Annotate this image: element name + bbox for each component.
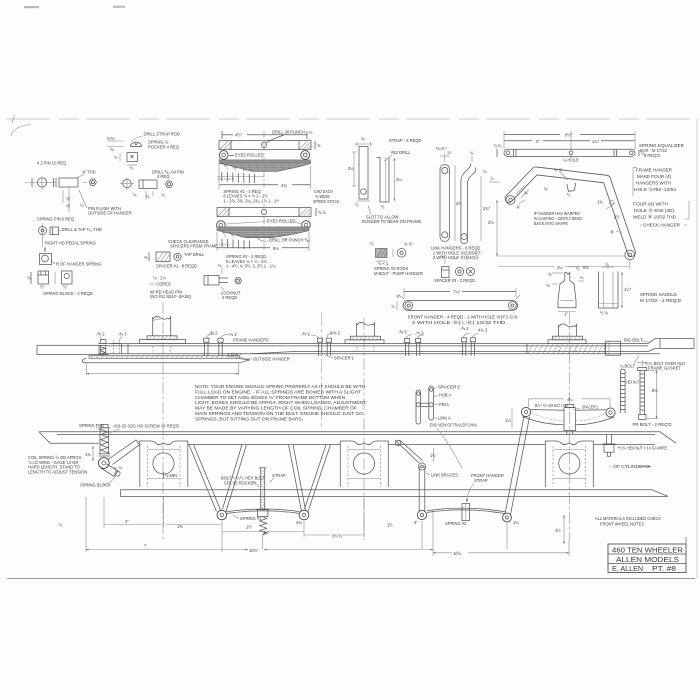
svg-text:⅔”: ⅔” xyxy=(66,204,71,209)
svg-text:ROCKER 4 REQ: ROCKER 4 REQ xyxy=(148,145,179,150)
svg-text:∕⅛ 3: ∕⅛ 3 xyxy=(228,332,237,337)
svg-text:M BOLT - PUMP HANGER: M BOLT - PUMP HANGER xyxy=(374,271,423,276)
svg-text:MAKE FOUR (4): MAKE FOUR (4) xyxy=(637,174,672,179)
svg-text:⅞”: ⅞” xyxy=(66,197,71,202)
svg-text:½: ½ xyxy=(59,523,63,528)
svg-text:⅞: ⅞ xyxy=(490,176,494,181)
svg-text:HUB A: HUB A xyxy=(439,393,452,398)
svg-text:SPACER #3 - 2 REQD: SPACER #3 - 2 REQD xyxy=(434,278,475,283)
svg-text:∕⅛ 3: ∕⅛ 3 xyxy=(415,331,424,336)
svg-text:TAP DRILL: TAP DRILL xyxy=(184,252,205,257)
svg-text:⅛ MIN: ⅛ MIN xyxy=(165,473,177,478)
svg-text:½: ½ xyxy=(370,242,374,247)
svg-text:□ - CORED: □ - CORED xyxy=(150,282,171,287)
svg-text:ROCKER TO BEAR ON FRAME: ROCKER TO BEAR ON FRAME xyxy=(362,219,421,224)
svg-text:SPACER’2: SPACER’2 xyxy=(438,385,461,390)
svg-text:⅝: ⅝ xyxy=(544,187,548,192)
svg-text:∕⅝″2: ∕⅝″2 xyxy=(301,332,311,337)
svg-text:⅛: ⅛ xyxy=(546,283,550,288)
svg-text:⅔ Ⓐ: ⅔ Ⓐ xyxy=(404,241,413,247)
svg-text:2 REQD: 2 REQD xyxy=(222,295,237,300)
svg-text:4¼: 4¼ xyxy=(567,397,573,402)
svg-text:ALLEN MODELS: ALLEN MODELS xyxy=(616,555,679,564)
svg-text:HEX NUT: HEX NUT xyxy=(627,380,640,385)
svg-text:(NO #11 SELF- BASE): (NO #11 SELF- BASE) xyxy=(150,294,192,299)
svg-text:2 WITH HOLE Ⓑ(​5/40)Ⓖ: 2 WITH HOLE Ⓑ(​5/40)Ⓖ xyxy=(433,254,479,260)
svg-text:DRILL STRAP ROD: DRILL STRAP ROD xyxy=(144,132,180,137)
svg-text:PIN’1: PIN’1 xyxy=(439,402,450,407)
svg-text:HOLE Ⓑ 5/40 (4D): HOLE Ⓑ 5/40 (4D) xyxy=(634,207,675,213)
svg-text:# 2 PIN 10 REQ: # 2 PIN 10 REQ xyxy=(37,161,66,166)
svg-text:¼: ¼ xyxy=(80,203,84,208)
svg-text:NOTE: YOUR ENGINE SHOULD SPRIN: NOTE: YOUR ENGINE SHOULD SPRING PROPERLY… xyxy=(195,384,365,389)
svg-text:SPACER #1 - 8 REQD: SPACER #1 - 8 REQD xyxy=(156,264,197,269)
svg-text:1½: 1½ xyxy=(246,525,252,530)
svg-text:1½: 1½ xyxy=(505,418,511,423)
svg-text:⅜: ⅜ xyxy=(144,255,148,260)
svg-text:FRONT HANGER - 4 REQD - 2 WITH: FRONT HANGER - 4 REQD - 2 WITH HOLE Ⓐ(Ⓕ)… xyxy=(408,314,518,320)
svg-text:FOUR (4) WITH: FOUR (4) WITH xyxy=(633,202,668,207)
svg-text:OUTSIDE OF HANGER: OUTSIDE OF HANGER xyxy=(88,211,132,216)
svg-text:SPACERS FROM FRAME: SPACERS FROM FRAME xyxy=(170,244,218,249)
svg-text:2¾″: 2¾″ xyxy=(483,206,491,211)
svg-text:3″: 3″ xyxy=(125,519,129,524)
svg-text:#53 DRILL: #53 DRILL xyxy=(391,150,411,155)
svg-text:SPRING STOCK: SPRING STOCK xyxy=(313,199,339,204)
svg-text:10⅞: 10⅞ xyxy=(453,551,462,556)
svg-text:4 REQ: 4 REQ xyxy=(157,174,169,179)
svg-text:RIGHT HD PEDAL SPRING: RIGHT HD PEDAL SPRING xyxy=(45,241,96,246)
svg-text:½″: ½″ xyxy=(441,254,446,259)
svg-text:LIGHT, BOXES SHOULD BE APROX.: LIGHT, BOXES SHOULD BE APROX. RIGHT WHEN… xyxy=(195,400,367,405)
svg-text:⅛: ⅛ xyxy=(133,193,137,198)
svg-text:FRAME HANGER: FRAME HANGER xyxy=(636,168,672,173)
svg-text:MAY BE MADE BY VARYING LENGTH: MAY BE MADE BY VARYING LENGTH OF COIL SP… xyxy=(195,406,358,411)
svg-text:2½: 2½ xyxy=(456,201,462,206)
svg-text:⅒⅖″: ⅒⅖″ xyxy=(436,146,448,151)
svg-text:BUY + ⅕⅖ HEX BOLT 1 NUT: BUY + ⅕⅖ HEX BOLT 1 NUT xyxy=(535,403,568,408)
svg-text:1⅝: 1⅝ xyxy=(597,200,603,205)
svg-text:DRILL & TAP ⅕₀ THD: DRILL & TAP ⅕₀ THD xyxy=(62,227,102,232)
svg-text:8½″: 8½″ xyxy=(565,133,573,138)
svg-text:EYES ROLLED: EYES ROLLED xyxy=(267,219,295,224)
svg-text:↖ ⅛: ↖ ⅛ xyxy=(114,466,123,471)
svg-text:2⅛: 2⅛ xyxy=(488,220,494,225)
svg-text:¼ BOLT: ¼ BOLT xyxy=(620,364,635,369)
svg-text:PR BOLT - 2 REQ'D: PR BOLT - 2 REQ'D xyxy=(633,422,672,427)
svg-text:FULL LOAD ON ENGINE. - IF ALL: FULL LOAD ON ENGINE. - IF ALL SPRINGS AR… xyxy=(195,389,362,394)
svg-text:BACK INTO SHAPE: BACK INTO SHAPE xyxy=(534,221,568,226)
svg-text:⅕⅖: ⅕⅖ xyxy=(494,144,502,149)
svg-text:E. ALLEN: E. ALLEN xyxy=(612,564,643,573)
svg-text:4½: 4½ xyxy=(555,528,561,533)
svg-text:FRAME GASKET: FRAME GASKET xyxy=(648,365,682,370)
svg-text:½”: ½” xyxy=(63,285,68,290)
svg-text:1½″: 1½″ xyxy=(624,287,632,292)
svg-text:WELD Ⓑ 10/32 THD: WELD Ⓑ 10/32 THD xyxy=(633,214,676,220)
svg-text:2¼: 2¼ xyxy=(348,166,354,171)
svg-text:⅞: ⅞ xyxy=(27,276,31,281)
svg-text:BIG BOLT: BIG BOLT xyxy=(624,338,643,343)
svg-text:½: ½ xyxy=(355,203,359,208)
svg-text:DRILL OR PUNCH ⅒: DRILL OR PUNCH ⅒ xyxy=(269,238,311,243)
svg-text:⅞″: ⅞″ xyxy=(447,151,452,156)
svg-text:4½: 4½ xyxy=(263,530,269,535)
svg-text:7⅛″: 7⅛″ xyxy=(453,290,461,295)
svg-text:2¼: 2¼ xyxy=(396,177,402,182)
svg-text:∕⅝ 2: ∕⅝ 2 xyxy=(96,332,105,337)
svg-text:⅝: ⅝ xyxy=(548,272,552,277)
svg-text:¾: ¾ xyxy=(470,151,474,156)
svg-text:½: ½ xyxy=(381,205,385,210)
svg-text:½”: ½” xyxy=(40,285,45,290)
svg-text:Ⓐ: Ⓐ xyxy=(396,293,400,299)
svg-text:4¼: 4¼ xyxy=(557,265,563,270)
svg-text:OUTSIDE HANGER: OUTSIDE HANGER xyxy=(253,357,290,362)
svg-text:¼ ¾ ½ ¾ ¼ ½: ¼ ¾ ½ ¾ ¼ ½ xyxy=(218,177,235,181)
svg-text:8 REQ'D: 8 REQ'D xyxy=(644,153,660,158)
svg-text:∕⅝ 2: ∕⅝ 2 xyxy=(209,331,218,336)
svg-text:LINK BRACES: LINK BRACES xyxy=(431,473,458,478)
svg-text:FRONT WHEEL NOTES: FRONT WHEEL NOTES xyxy=(600,521,644,526)
svg-text:END VIEW OF TRAILER CHNA: END VIEW OF TRAILER CHNA xyxy=(430,423,477,428)
svg-text:⅛: ⅛ xyxy=(483,169,487,174)
svg-text:460 TEN WHEELER: 460 TEN WHEELER xyxy=(612,546,683,555)
svg-text:SPACER’2: SPACER’2 xyxy=(582,405,599,410)
svg-text:∕⅝ 2: ∕⅝ 2 xyxy=(460,326,469,331)
svg-text:½: ½ xyxy=(146,195,150,200)
svg-text:1¾″: 1¾″ xyxy=(592,139,600,144)
svg-text:4​¾ 3: 4​¾ 3 xyxy=(478,328,488,333)
svg-text:+⅕⅖ HEX NUT × 14 GA WIRE: +⅕⅖ HEX NUT × 14 GA WIRE xyxy=(617,446,667,451)
svg-text:HANGERS WITH: HANGERS WITH xyxy=(636,181,671,186)
svg-text:½: ½ xyxy=(567,193,571,198)
svg-text:SPRING BLOCK - 2 REQD: SPRING BLOCK - 2 REQD xyxy=(43,291,93,296)
svg-text:⅝: ⅝ xyxy=(317,143,321,148)
svg-text:1 - 4½, 4, 3½, 3, 2½ 1 - 1¾: 1 - 4½, 4, 3½, 3, 2½ 1 - 1¾ xyxy=(226,264,276,269)
svg-text:3″: 3″ xyxy=(414,520,418,525)
svg-text:SPACER’1: SPACER’1 xyxy=(334,356,354,361)
svg-text:½: ½ xyxy=(576,267,580,272)
svg-text:SPRINGS, BUT SITTING OUT ON FR: SPRINGS, BUT SITTING OUT ON FRAME BARS. xyxy=(195,416,303,421)
svg-text:R OF HANGER SPRING: R OF HANGER SPRING xyxy=(56,262,101,267)
svg-text:4¾: 4¾ xyxy=(281,183,287,188)
svg-text:SPRING SADDLE: SPRING SADDLE xyxy=(640,292,677,297)
svg-text:4​¾: 4​¾ xyxy=(296,520,302,525)
svg-text:½: ½ xyxy=(130,166,134,171)
svg-text:4½″: 4½″ xyxy=(235,133,243,138)
svg-text:½: ½ xyxy=(114,155,118,160)
svg-text:⅝: ⅝ xyxy=(361,137,365,142)
svg-text:½ Ⓐ: ½ Ⓐ xyxy=(554,167,563,173)
svg-text:⅝ ⅞: ⅝ ⅞ xyxy=(318,210,327,215)
svg-text:HOLE Ⓐ#50 -​13/64: HOLE Ⓐ#50 -​13/64 xyxy=(634,186,677,192)
svg-text:PT. #8: PT. #8 xyxy=(652,564,676,573)
svg-text:½ ⅔: ½ ⅔ xyxy=(600,311,609,316)
svg-text:3″: 3″ xyxy=(536,139,540,144)
svg-text:SPRING PIN 6 REQ: SPRING PIN 6 REQ xyxy=(37,217,74,222)
svg-text:FRAME HANGERS: FRAME HANGERS xyxy=(233,338,269,343)
svg-text:¾: ¾ xyxy=(605,262,609,267)
svg-text:SPRING PAD: SPRING PAD xyxy=(79,423,104,428)
svg-text:1½: 1½ xyxy=(387,523,393,528)
svg-text:8½: 8½ xyxy=(652,388,658,393)
svg-text:1⅜: 1⅜ xyxy=(177,524,183,529)
svg-text:EYES ROLLED: EYES ROLLED xyxy=(235,153,263,158)
svg-text:ALL MATERIALS INCLUDED CHECK: ALL MATERIALS INCLUDED CHECK xyxy=(595,516,661,521)
svg-text:2½: 2½ xyxy=(614,215,620,220)
svg-text:#10-32 SOC HD SCREW +2 REQ'D: #10-32 SOC HD SCREW +2 REQ'D xyxy=(114,424,180,429)
svg-text:CPL #2 ROCKER: CPL #2 ROCKER xyxy=(224,481,256,486)
svg-text:M 17/32 - 2 REQ'D: M 17/32 - 2 REQ'D xyxy=(640,298,681,303)
svg-text:∕⅝″2: ∕⅝″2 xyxy=(398,330,408,335)
svg-text:1¼: 1¼ xyxy=(513,520,519,525)
svg-text:1 - 3⅞, 3⅝, 3¼, 2¾, 1⅞ 1 - 1: 1 - 3⅞, 3⅝, 3¼, 2¾, 1⅞ 1 - 1⅟ xyxy=(223,198,280,203)
svg-text:STRAP: STRAP xyxy=(474,478,488,483)
svg-text:LENGTH TO ADJUST TENSION: LENGTH TO ADJUST TENSION xyxy=(28,469,87,474)
svg-text:5⅕⅖: 5⅕⅖ xyxy=(332,533,342,538)
svg-text:⅝: ⅝ xyxy=(524,191,528,196)
svg-text:⅛: ⅛ xyxy=(161,193,165,198)
svg-text:STRAP: STRAP xyxy=(272,473,286,478)
svg-text:⅛: ⅛ xyxy=(309,130,313,135)
svg-text:Ⓑ: Ⓑ xyxy=(610,229,614,235)
svg-text:¼ ½ ¾ ½: ¼ ½ ¾ ½ xyxy=(219,243,230,247)
svg-text:1½: 1½ xyxy=(430,453,436,458)
svg-text:∕⅜ 3: ∕⅜ 3 xyxy=(118,332,127,337)
svg-text:SPRING #2: SPRING #2 xyxy=(445,521,467,526)
svg-text:MAIN SPRINGS AND TENSION ON TH: MAIN SPRINGS AND TENSION ON THE BOLT. EN… xyxy=(195,411,363,416)
svg-text:⅛ - 1⅛: ⅛ - 1⅛ xyxy=(153,276,166,281)
svg-text:9⅛: 9⅛ xyxy=(273,246,279,251)
svg-text:Ⓐ: Ⓐ xyxy=(516,204,520,210)
svg-text:¼: ¼ xyxy=(580,275,584,280)
svg-text:5⅝: 5⅝ xyxy=(583,265,589,270)
svg-text:⅞: ⅞ xyxy=(391,304,395,309)
svg-text:CHAMBER TO SET AXEL BOXES ⅛″ F: CHAMBER TO SET AXEL BOXES ⅛″ FROM FRAME … xyxy=(195,395,345,400)
svg-text:¼: ¼ xyxy=(218,263,222,268)
svg-text:CHECK HANGER: CHECK HANGER xyxy=(643,223,680,228)
svg-text:4∕⅝ 3: 4∕⅝ 3 xyxy=(330,331,341,336)
svg-text:SPRING BLOCK: SPRING BLOCK xyxy=(80,483,111,488)
svg-text:10½″: 10½″ xyxy=(249,548,259,553)
svg-text:1″: 1″ xyxy=(564,312,568,317)
svg-text:¼ HOLE: ¼ HOLE xyxy=(563,158,579,163)
svg-text:⅝: ⅝ xyxy=(110,147,114,152)
svg-text:STRAP - 6 REQD: STRAP - 6 REQD xyxy=(389,138,421,143)
svg-text:1⅜: 1⅜ xyxy=(85,452,91,457)
svg-text:⅕⅖: ⅕⅖ xyxy=(107,136,115,141)
svg-text:DRILL 30 PUNCH: DRILL 30 PUNCH xyxy=(272,130,305,135)
svg-text:Ⓐ THD: Ⓐ THD xyxy=(82,169,96,175)
svg-text:2 WITH HOLE Ⓑ(ⓁⓂ) 10/32 THD.: 2 WITH HOLE Ⓑ(ⓁⓂ) 10/32 THD. xyxy=(412,319,507,325)
svg-text:LINK A: LINK A xyxy=(438,416,451,421)
